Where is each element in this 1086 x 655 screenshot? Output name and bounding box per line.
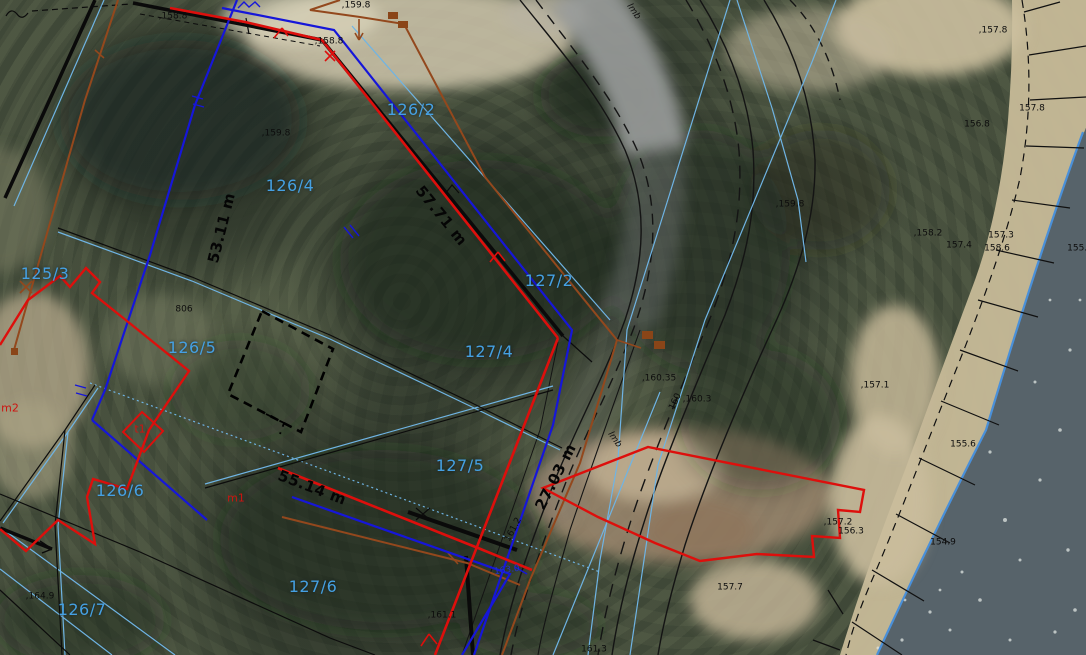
map-viewport[interactable]: 126/2126/4125/3126/5126/6126/7127/2127/4… bbox=[0, 0, 1086, 655]
cadastral-overlay bbox=[0, 0, 1086, 655]
terrain-layer bbox=[0, 0, 1086, 655]
